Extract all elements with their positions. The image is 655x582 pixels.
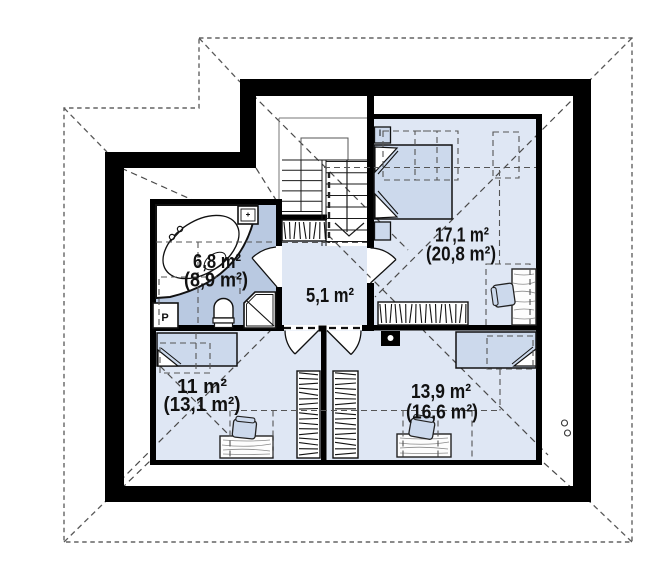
svg-text:(8,9 m²): (8,9 m²) — [184, 270, 248, 292]
svg-text:P: P — [161, 312, 168, 324]
svg-text:5,1 m²: 5,1 m² — [306, 285, 354, 307]
svg-text:(13,1 m²): (13,1 m²) — [164, 394, 241, 416]
svg-text:13,9 m²: 13,9 m² — [411, 381, 471, 403]
svg-text:(20,8 m²): (20,8 m²) — [426, 244, 496, 266]
svg-text:(16,6 m²): (16,6 m²) — [406, 402, 478, 424]
